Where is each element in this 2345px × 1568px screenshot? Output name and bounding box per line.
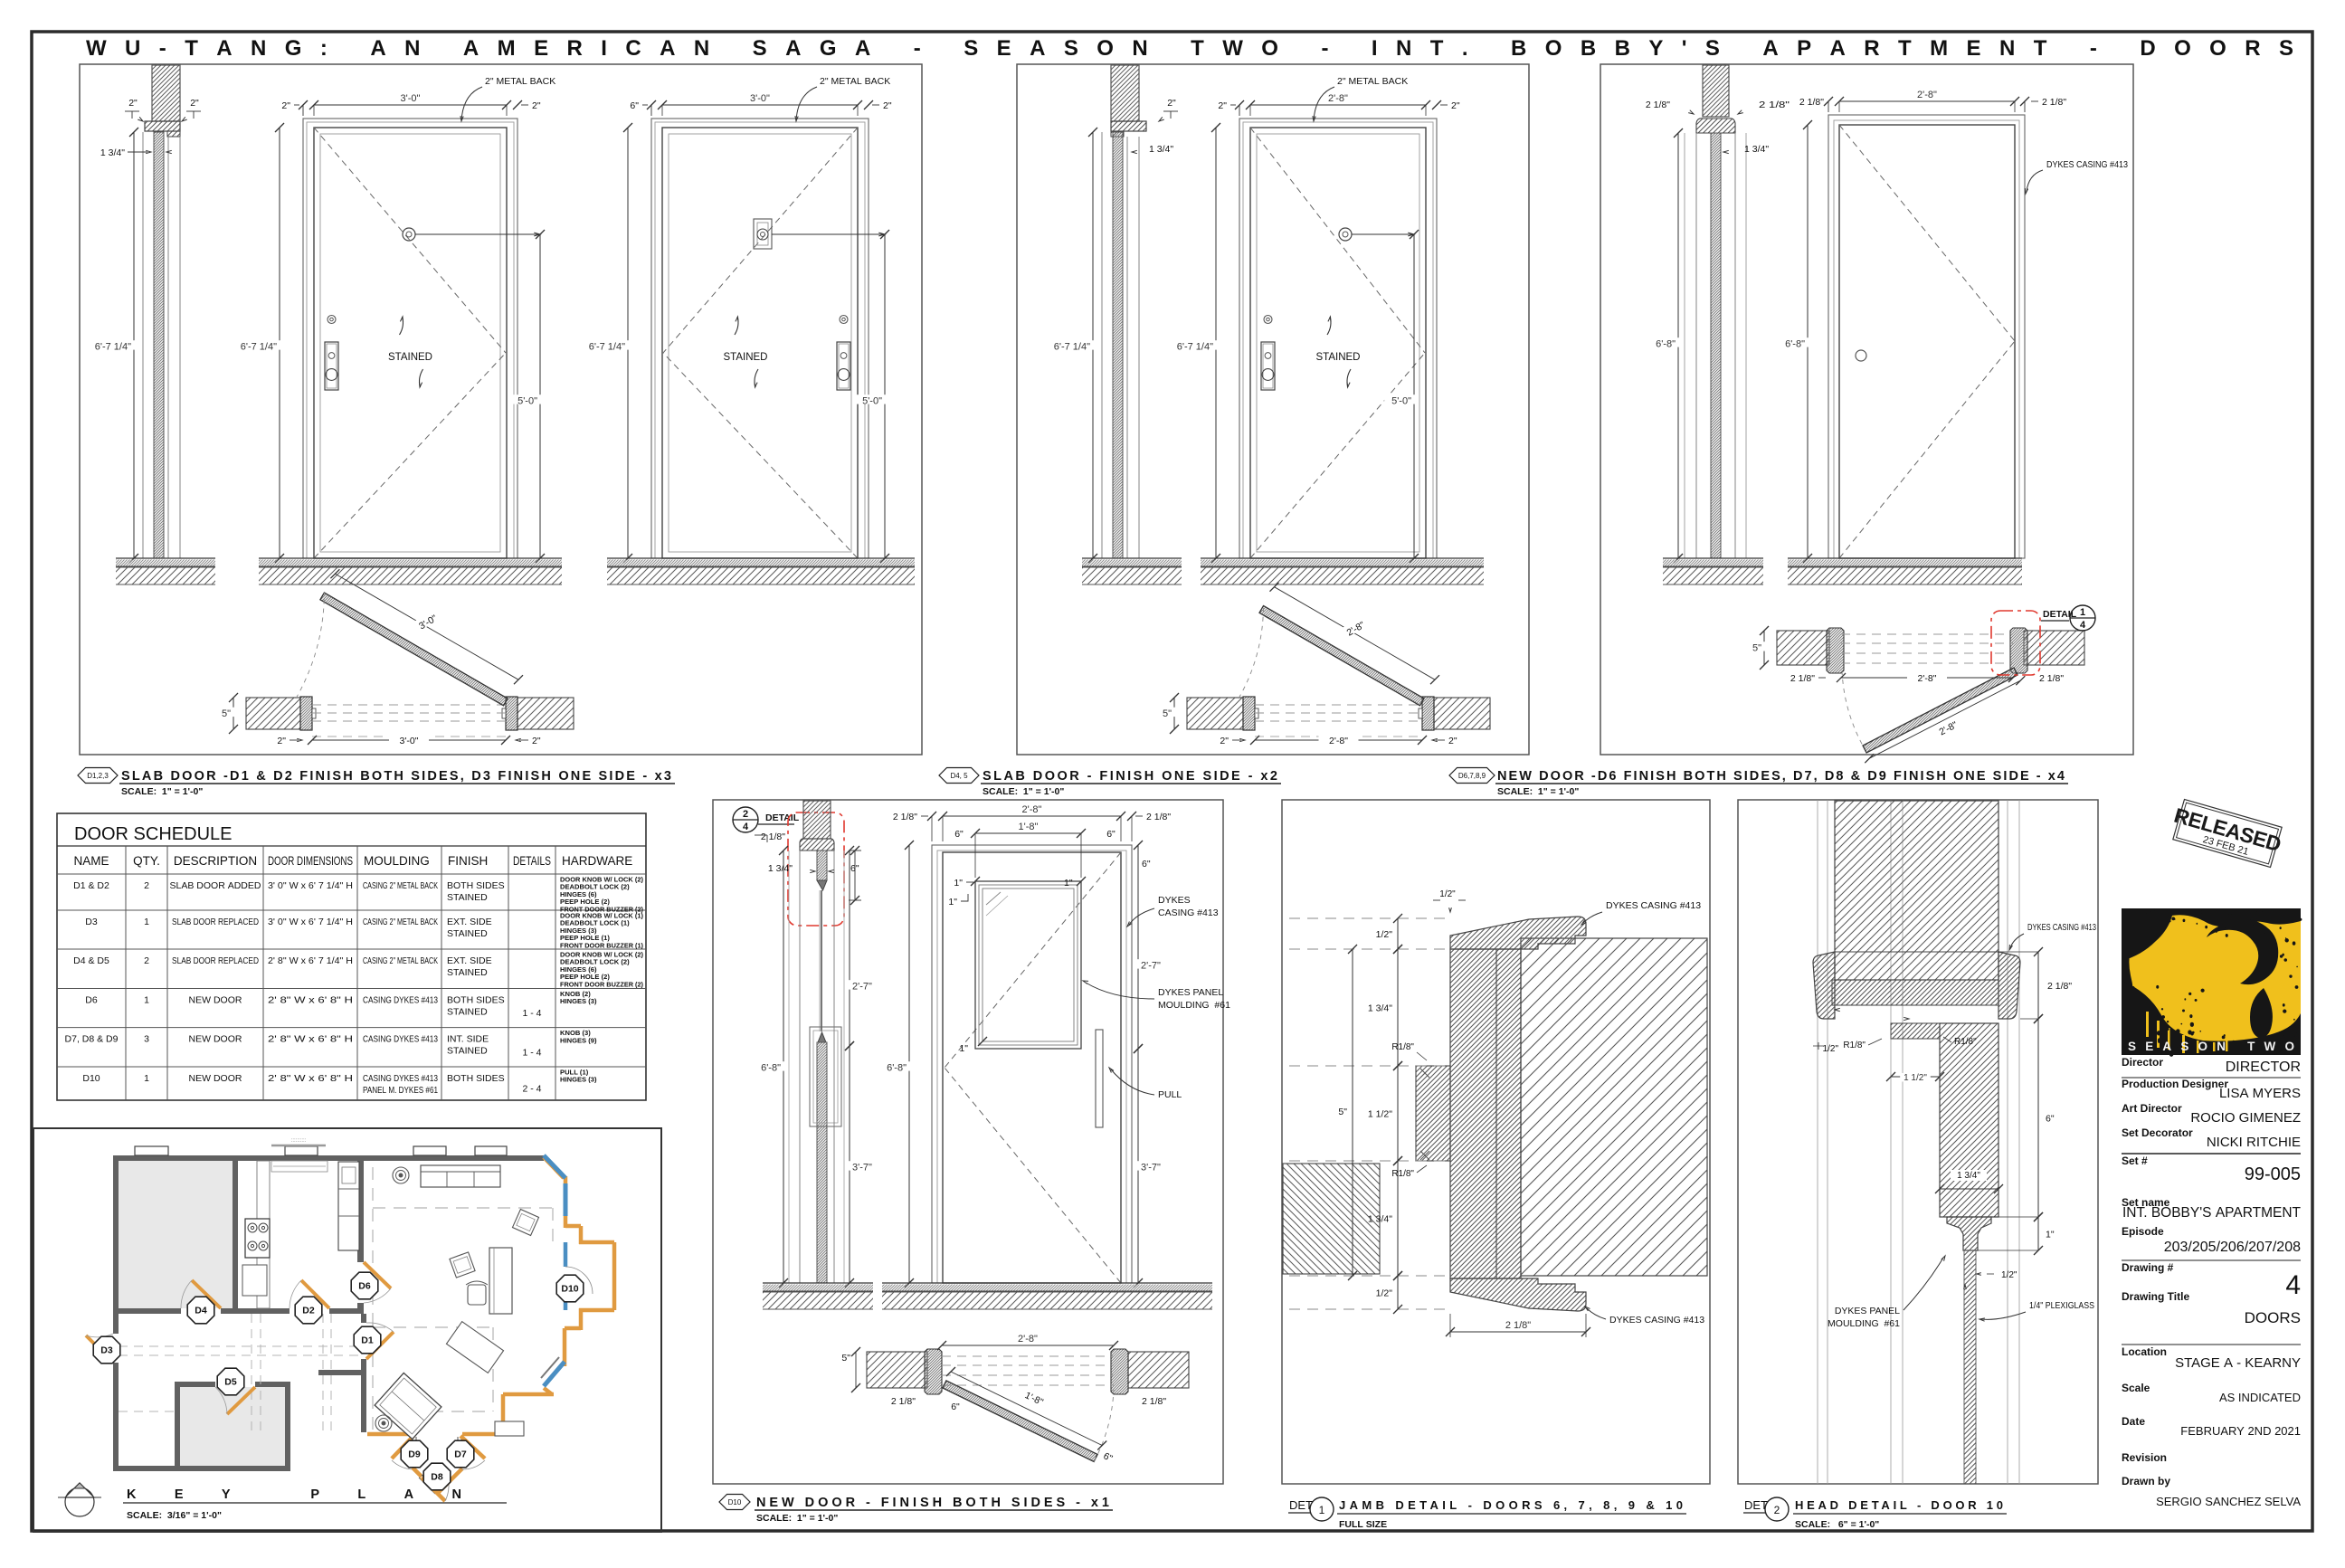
svg-text:2": 2" bbox=[190, 98, 199, 109]
svg-text:2": 2" bbox=[1167, 98, 1176, 109]
svg-text:2": 2" bbox=[1451, 100, 1460, 111]
svg-text:2' 8" W x 6' 8" H: 2' 8" W x 6' 8" H bbox=[268, 1034, 353, 1045]
svg-text:6": 6" bbox=[951, 1402, 960, 1412]
svg-text:DYKES CASING #413: DYKES CASING #413 bbox=[2046, 159, 2128, 170]
svg-text:1 3/4": 1 3/4" bbox=[768, 863, 793, 874]
svg-text:99-005: 99-005 bbox=[2245, 1164, 2301, 1184]
svg-text:2 1/8": 2 1/8" bbox=[1505, 1320, 1531, 1331]
svg-text:1: 1 bbox=[2080, 607, 2085, 618]
svg-text:1/2": 1/2" bbox=[1823, 1044, 1839, 1054]
svg-text:DETAILS: DETAILS bbox=[513, 854, 551, 868]
svg-text:D6: D6 bbox=[85, 995, 98, 1006]
svg-text:1/2": 1/2" bbox=[1376, 929, 1393, 940]
svg-text:2": 2" bbox=[1220, 736, 1229, 746]
svg-text:DOORS: DOORS bbox=[2245, 1309, 2301, 1326]
svg-text:Set Decorator: Set Decorator bbox=[2122, 1126, 2193, 1139]
svg-text:1 1/2": 1 1/2" bbox=[1904, 1073, 1927, 1083]
svg-text:MOULDING: MOULDING bbox=[364, 854, 430, 868]
svg-text:MOULDING #61: MOULDING #61 bbox=[1158, 1000, 1230, 1011]
svg-text:INT. BOBBY'S APARTMENT: INT. BOBBY'S APARTMENT bbox=[2122, 1205, 2302, 1221]
svg-text:INT. SIDE: INT. SIDE bbox=[447, 1034, 489, 1045]
svg-text:JAMB DETAIL - DOORS 6, 7, 8, 9: JAMB DETAIL - DOORS 6, 7, 8, 9 & 10 bbox=[1339, 1498, 1683, 1512]
svg-text:1/4" PLEXIGLASS: 1/4" PLEXIGLASS bbox=[2029, 1300, 2094, 1311]
svg-text:2": 2" bbox=[281, 100, 290, 111]
svg-text:NICKI RITCHIE: NICKI RITCHIE bbox=[2207, 1135, 2301, 1150]
svg-text:D3: D3 bbox=[85, 917, 98, 927]
svg-text:5'-0": 5'-0" bbox=[1391, 396, 1411, 407]
svg-text:D1: D1 bbox=[361, 1335, 374, 1346]
svg-text:2' 8" W x 6' 7 1/4" H: 2' 8" W x 6' 7 1/4" H bbox=[268, 955, 353, 966]
svg-text:2 1/8": 2 1/8" bbox=[2042, 97, 2066, 108]
svg-text:D4, 5: D4, 5 bbox=[950, 772, 968, 780]
svg-text:5": 5" bbox=[841, 1353, 850, 1364]
svg-text:DET: DET bbox=[1744, 1498, 1768, 1512]
svg-text:3'-0": 3'-0" bbox=[400, 736, 419, 746]
svg-text:D6: D6 bbox=[358, 1281, 371, 1292]
svg-text:D1 & D2: D1 & D2 bbox=[73, 880, 109, 891]
svg-text:6'-8": 6'-8" bbox=[761, 1063, 781, 1074]
svg-text:3: 3 bbox=[144, 1034, 149, 1045]
svg-text:NEW DOOR: NEW DOOR bbox=[189, 995, 242, 1006]
svg-text:1 1/2": 1 1/2" bbox=[1368, 1109, 1392, 1120]
svg-text:HARDWARE: HARDWARE bbox=[562, 854, 632, 868]
svg-text:1/2": 1/2" bbox=[1439, 889, 1456, 899]
svg-text:2 1/8": 2 1/8" bbox=[1646, 100, 1670, 110]
svg-text:Production Designer: Production Designer bbox=[2122, 1078, 2228, 1090]
svg-text:6'-8": 6'-8" bbox=[1785, 339, 1805, 350]
svg-text:1": 1" bbox=[954, 878, 963, 889]
svg-text:D1,2,3: D1,2,3 bbox=[87, 772, 109, 780]
svg-text:::::::::::: :::::::::: bbox=[291, 1138, 307, 1144]
svg-text:FINISH: FINISH bbox=[448, 854, 488, 868]
svg-text:1": 1" bbox=[959, 1043, 968, 1054]
svg-text:1 3/4": 1 3/4" bbox=[1149, 144, 1173, 155]
svg-text:D10: D10 bbox=[728, 1498, 742, 1506]
svg-text:R1/8": R1/8" bbox=[1391, 1042, 1414, 1052]
svg-text:N E W D O O R - F I N I: N E W D O O R - F I N I S H B O T H S I … bbox=[756, 1496, 1109, 1510]
svg-text:HINGES (3): HINGES (3) bbox=[560, 997, 597, 1005]
svg-text:2'-8": 2'-8" bbox=[1018, 1334, 1038, 1345]
svg-text:2: 2 bbox=[743, 809, 748, 820]
svg-text:SLAB DOOR REPLACED: SLAB DOOR REPLACED bbox=[172, 917, 259, 927]
svg-text:1 3/4": 1 3/4" bbox=[1368, 1003, 1392, 1014]
svg-text:1'-8": 1'-8" bbox=[1019, 822, 1039, 832]
svg-text:2 1/8": 2 1/8" bbox=[891, 1396, 916, 1407]
svg-text:2 1/8": 2 1/8" bbox=[2047, 981, 2072, 992]
svg-text:2: 2 bbox=[1774, 1504, 1780, 1516]
svg-text:ROCIO GIMENEZ: ROCIO GIMENEZ bbox=[2190, 1110, 2301, 1126]
svg-text:2 1/8": 2 1/8" bbox=[1759, 100, 1790, 110]
svg-text:D2: D2 bbox=[302, 1306, 315, 1316]
svg-text:1 3/4": 1 3/4" bbox=[1744, 144, 1769, 155]
svg-text:CASING 2" METAL BACK: CASING 2" METAL BACK bbox=[363, 917, 438, 927]
svg-text:2": 2" bbox=[128, 98, 138, 109]
svg-text:STAGE A - KEARNY: STAGE A - KEARNY bbox=[2175, 1355, 2301, 1371]
svg-text:2 1/8": 2 1/8" bbox=[761, 832, 785, 842]
svg-text:HINGES (3): HINGES (3) bbox=[560, 1076, 597, 1084]
svg-text:Date: Date bbox=[2122, 1415, 2145, 1428]
svg-text:D5: D5 bbox=[224, 1377, 237, 1388]
svg-text:NEW DOOR: NEW DOOR bbox=[189, 1034, 242, 1045]
svg-text:Drawing Title: Drawing Title bbox=[2122, 1290, 2189, 1303]
svg-text:SCALE: 1" = 1'-0": SCALE: 1" = 1'-0" bbox=[121, 786, 203, 797]
svg-text:DOOR SCHEDULE: DOOR SCHEDULE bbox=[74, 824, 232, 844]
svg-text:D10: D10 bbox=[561, 1284, 578, 1295]
svg-text:HINGES (9): HINGES (9) bbox=[560, 1036, 597, 1044]
svg-text:STAINED: STAINED bbox=[388, 352, 432, 363]
svg-text:FRONT DOOR BUZZER (1): FRONT DOOR BUZZER (1) bbox=[560, 941, 643, 949]
svg-text:S E A S O N T W O: S E A S O N T W O bbox=[2128, 1040, 2294, 1053]
svg-text:NEW DOOR: NEW DOOR bbox=[189, 1073, 242, 1084]
svg-text:2: 2 bbox=[144, 880, 149, 891]
svg-text:2 1/8": 2 1/8" bbox=[893, 812, 917, 822]
svg-text:DETAIL: DETAIL bbox=[765, 813, 800, 823]
svg-text:LISA MYERS: LISA MYERS bbox=[2219, 1086, 2301, 1101]
svg-text:N E W D O O R - D 6 F I: N E W D O O R - D 6 F I N I S H B O T H … bbox=[1497, 769, 2065, 784]
svg-text:HEAD DETAIL - DOOR 10: HEAD DETAIL - DOOR 10 bbox=[1795, 1498, 2003, 1512]
svg-text:DYKES PANEL: DYKES PANEL bbox=[1835, 1306, 1900, 1316]
svg-text:1": 1" bbox=[1064, 878, 1073, 889]
svg-text:STAINED: STAINED bbox=[447, 1046, 488, 1057]
svg-text:BOTH SIDES: BOTH SIDES bbox=[447, 1073, 505, 1084]
svg-text:Set #: Set # bbox=[2122, 1155, 2148, 1167]
svg-text:CASING 2" METAL BACK: CASING 2" METAL BACK bbox=[363, 956, 438, 966]
svg-text:2'-8": 2'-8" bbox=[1328, 93, 1348, 104]
svg-text:6'-8": 6'-8" bbox=[887, 1063, 907, 1074]
svg-text:DYKES CASING #413: DYKES CASING #413 bbox=[2027, 922, 2096, 933]
svg-text:DIRECTOR: DIRECTOR bbox=[2226, 1060, 2301, 1075]
svg-text:STAINED: STAINED bbox=[447, 967, 488, 978]
svg-text:2": 2" bbox=[1218, 100, 1227, 111]
svg-text:2": 2" bbox=[1448, 736, 1457, 746]
svg-text:PANEL M. DYKES #61: PANEL M. DYKES #61 bbox=[363, 1086, 438, 1096]
svg-text:3'-7": 3'-7" bbox=[852, 1163, 872, 1174]
svg-text:1: 1 bbox=[144, 917, 149, 927]
svg-text:SCALE: 1" = 1'-0": SCALE: 1" = 1'-0" bbox=[1497, 786, 1579, 797]
svg-text:EXT. SIDE: EXT. SIDE bbox=[447, 917, 492, 927]
svg-text:BOTH SIDES: BOTH SIDES bbox=[447, 995, 505, 1006]
svg-text:5": 5" bbox=[1163, 708, 1172, 719]
svg-text:2'-7": 2'-7" bbox=[1141, 961, 1161, 972]
svg-text:203/205/206/207/208: 203/205/206/207/208 bbox=[2164, 1240, 2301, 1255]
svg-text:STAINED: STAINED bbox=[447, 928, 488, 939]
svg-text:1: 1 bbox=[144, 995, 149, 1006]
svg-text:SCALE: 3/16" = 1'-0": SCALE: 3/16" = 1'-0" bbox=[127, 1510, 222, 1521]
svg-text:CASING DYKES #413: CASING DYKES #413 bbox=[363, 996, 438, 1006]
svg-text:CASING #413: CASING #413 bbox=[1158, 908, 1219, 918]
svg-text:6": 6" bbox=[2046, 1114, 2055, 1125]
svg-text:5": 5" bbox=[1338, 1107, 1347, 1117]
svg-text:6": 6" bbox=[630, 100, 639, 111]
svg-text:D10: D10 bbox=[82, 1073, 100, 1084]
svg-text:SLAB DOOR REPLACED: SLAB DOOR REPLACED bbox=[172, 955, 259, 966]
svg-text:2'-8": 2'-8" bbox=[1329, 736, 1348, 746]
svg-text:Revision: Revision bbox=[2122, 1451, 2167, 1464]
svg-text:D3: D3 bbox=[100, 1345, 113, 1356]
svg-text:DESCRIPTION: DESCRIPTION bbox=[174, 854, 257, 868]
svg-text:1 3/4": 1 3/4" bbox=[1368, 1214, 1392, 1225]
svg-text:STAINED: STAINED bbox=[1316, 352, 1361, 363]
svg-text:3'-0": 3'-0" bbox=[401, 93, 421, 104]
svg-text:D8: D8 bbox=[431, 1472, 443, 1483]
svg-text:6'-7 1/4": 6'-7 1/4" bbox=[589, 342, 625, 353]
svg-text:D4: D4 bbox=[195, 1306, 207, 1316]
svg-text:5": 5" bbox=[222, 708, 231, 719]
svg-text:6'-7 1/4": 6'-7 1/4" bbox=[95, 342, 131, 353]
svg-text:QTY.: QTY. bbox=[133, 854, 160, 868]
svg-text:1/2": 1/2" bbox=[2001, 1270, 2017, 1280]
svg-text:S L A B D O O R - F I N: S L A B D O O R - F I N I S H O N E S I … bbox=[983, 769, 1277, 784]
svg-text:3' 0" W x 6' 7 1/4" H: 3' 0" W x 6' 7 1/4" H bbox=[268, 917, 353, 927]
svg-text:6": 6" bbox=[1142, 859, 1151, 870]
svg-text:SLAB DOOR ADDED: SLAB DOOR ADDED bbox=[170, 880, 261, 891]
svg-text:2": 2" bbox=[532, 100, 541, 111]
svg-text:3' 0" W x 6' 7 1/4" H: 3' 0" W x 6' 7 1/4" H bbox=[268, 880, 353, 891]
svg-text:2 1/8": 2 1/8" bbox=[1146, 812, 1171, 822]
svg-text:6'-7 1/4": 6'-7 1/4" bbox=[1177, 342, 1213, 353]
svg-text:3'-7": 3'-7" bbox=[1141, 1163, 1161, 1174]
svg-text:1 - 4: 1 - 4 bbox=[522, 1047, 541, 1058]
svg-text:1: 1 bbox=[144, 1073, 149, 1084]
svg-text:DOOR DIMENSIONS: DOOR DIMENSIONS bbox=[268, 854, 353, 868]
svg-text:2: 2 bbox=[144, 955, 149, 966]
svg-text:2" METAL BACK: 2" METAL BACK bbox=[1337, 76, 1408, 87]
svg-text:SCALE: 1" = 1'-0": SCALE: 1" = 1'-0" bbox=[983, 786, 1064, 797]
svg-text:Scale: Scale bbox=[2122, 1382, 2150, 1394]
svg-text:5'-0": 5'-0" bbox=[862, 396, 882, 407]
svg-text:Location: Location bbox=[2122, 1345, 2167, 1358]
svg-text:DET: DET bbox=[1289, 1498, 1313, 1512]
svg-text:2 1/8": 2 1/8" bbox=[1799, 97, 1824, 108]
svg-text:1": 1" bbox=[2046, 1230, 2055, 1240]
svg-text:FULL SIZE: FULL SIZE bbox=[1339, 1519, 1387, 1530]
svg-text:4: 4 bbox=[743, 822, 749, 832]
svg-text:STAINED: STAINED bbox=[724, 352, 768, 363]
svg-text:1": 1" bbox=[948, 897, 957, 908]
svg-text:1: 1 bbox=[1319, 1504, 1325, 1516]
svg-text:2 1/8": 2 1/8" bbox=[1790, 673, 1815, 684]
svg-text:2' 8" W x 6' 8" H: 2' 8" W x 6' 8" H bbox=[268, 995, 353, 1006]
svg-text:PULL: PULL bbox=[1158, 1089, 1182, 1100]
svg-text:4: 4 bbox=[2285, 1270, 2301, 1300]
svg-text:Drawn by: Drawn by bbox=[2122, 1475, 2170, 1487]
svg-text:S L A B D O O R - D 1 &: S L A B D O O R - D 1 & D 2 F I N I S H … bbox=[121, 769, 671, 784]
svg-text:NAME: NAME bbox=[73, 854, 109, 868]
svg-text:SERGIO SANCHEZ SELVA: SERGIO SANCHEZ SELVA bbox=[2156, 1495, 2301, 1508]
svg-text:SCALE: 6" = 1'-0": SCALE: 6" = 1'-0" bbox=[1795, 1519, 1879, 1530]
svg-text:6'-7 1/4": 6'-7 1/4" bbox=[241, 342, 277, 353]
svg-text:CASING DYKES #413: CASING DYKES #413 bbox=[363, 1035, 438, 1045]
svg-text:6": 6" bbox=[954, 829, 964, 840]
svg-text:2' 8" W x 6' 8" H: 2' 8" W x 6' 8" H bbox=[268, 1073, 353, 1084]
svg-text:2": 2" bbox=[277, 736, 286, 746]
svg-text:DYKES PANEL: DYKES PANEL bbox=[1158, 987, 1223, 998]
svg-text:6'-7 1/4": 6'-7 1/4" bbox=[1054, 342, 1090, 353]
svg-text:R1/8": R1/8" bbox=[1954, 1037, 1977, 1047]
svg-text:FEBRUARY 2ND 2021: FEBRUARY 2ND 2021 bbox=[2180, 1424, 2301, 1438]
svg-text:2": 2" bbox=[532, 736, 541, 746]
svg-text:Episode: Episode bbox=[2122, 1225, 2164, 1238]
svg-text:1 3/4": 1 3/4" bbox=[1957, 1171, 1980, 1181]
svg-text:DYKES: DYKES bbox=[1158, 895, 1191, 906]
svg-text:3'-0": 3'-0" bbox=[750, 93, 770, 104]
svg-text:R1/8": R1/8" bbox=[1391, 1169, 1414, 1179]
svg-text:2 1/8": 2 1/8" bbox=[2039, 673, 2064, 684]
svg-text:2'-8": 2'-8" bbox=[1918, 673, 1937, 684]
svg-text:2'-8": 2'-8" bbox=[1022, 804, 1042, 815]
svg-text:5'-0": 5'-0" bbox=[517, 396, 537, 407]
svg-text:CASING 2" METAL BACK: CASING 2" METAL BACK bbox=[363, 881, 438, 891]
svg-text:D4 & D5: D4 & D5 bbox=[73, 955, 109, 966]
svg-text:1 - 4: 1 - 4 bbox=[522, 1008, 541, 1019]
svg-text:DYKES CASING #413: DYKES CASING #413 bbox=[1606, 900, 1701, 911]
svg-text:FRONT DOOR BUZZER (2): FRONT DOOR BUZZER (2) bbox=[560, 980, 643, 988]
svg-text:MOULDING #61: MOULDING #61 bbox=[1828, 1318, 1900, 1329]
svg-text:Director: Director bbox=[2122, 1056, 2163, 1069]
svg-text:Drawing #: Drawing # bbox=[2122, 1261, 2174, 1274]
svg-text:4: 4 bbox=[2080, 620, 2086, 631]
svg-text:D7, D8 & D9: D7, D8 & D9 bbox=[65, 1034, 119, 1045]
svg-text:BOTH SIDES: BOTH SIDES bbox=[447, 880, 505, 891]
svg-text:R1/8": R1/8" bbox=[1843, 1041, 1866, 1050]
svg-text:CASING DYKES #413: CASING DYKES #413 bbox=[363, 1074, 438, 1084]
svg-text:6": 6" bbox=[1106, 829, 1116, 840]
svg-text:STAINED: STAINED bbox=[447, 1007, 488, 1018]
svg-text:SCALE: 1" = 1'-0": SCALE: 1" = 1'-0" bbox=[756, 1513, 838, 1524]
svg-text:2'-8": 2'-8" bbox=[1917, 90, 1937, 100]
svg-text:D9: D9 bbox=[408, 1449, 421, 1460]
svg-text:AS INDICATED: AS INDICATED bbox=[2219, 1391, 2301, 1404]
svg-text:Art Director: Art Director bbox=[2122, 1102, 2182, 1115]
svg-text:D7: D7 bbox=[454, 1449, 467, 1460]
svg-text:5": 5" bbox=[1752, 643, 1761, 654]
svg-text:2": 2" bbox=[883, 100, 892, 111]
svg-text:STAINED: STAINED bbox=[447, 892, 488, 903]
svg-text:1 3/4": 1 3/4" bbox=[100, 147, 125, 158]
svg-text:DYKES CASING #413: DYKES CASING #413 bbox=[1609, 1315, 1704, 1326]
svg-text:D6,7,8,9: D6,7,8,9 bbox=[1458, 772, 1486, 780]
svg-text:EXT. SIDE: EXT. SIDE bbox=[447, 955, 492, 966]
svg-text:2 - 4: 2 - 4 bbox=[522, 1084, 541, 1095]
svg-text:2" METAL BACK: 2" METAL BACK bbox=[820, 76, 890, 87]
svg-text:2" METAL BACK: 2" METAL BACK bbox=[485, 76, 555, 87]
svg-text:6'-8": 6'-8" bbox=[1656, 339, 1676, 350]
svg-text:1/2": 1/2" bbox=[1376, 1288, 1393, 1299]
svg-text:2'-7": 2'-7" bbox=[852, 982, 872, 993]
svg-text:2 1/8": 2 1/8" bbox=[1142, 1396, 1166, 1407]
